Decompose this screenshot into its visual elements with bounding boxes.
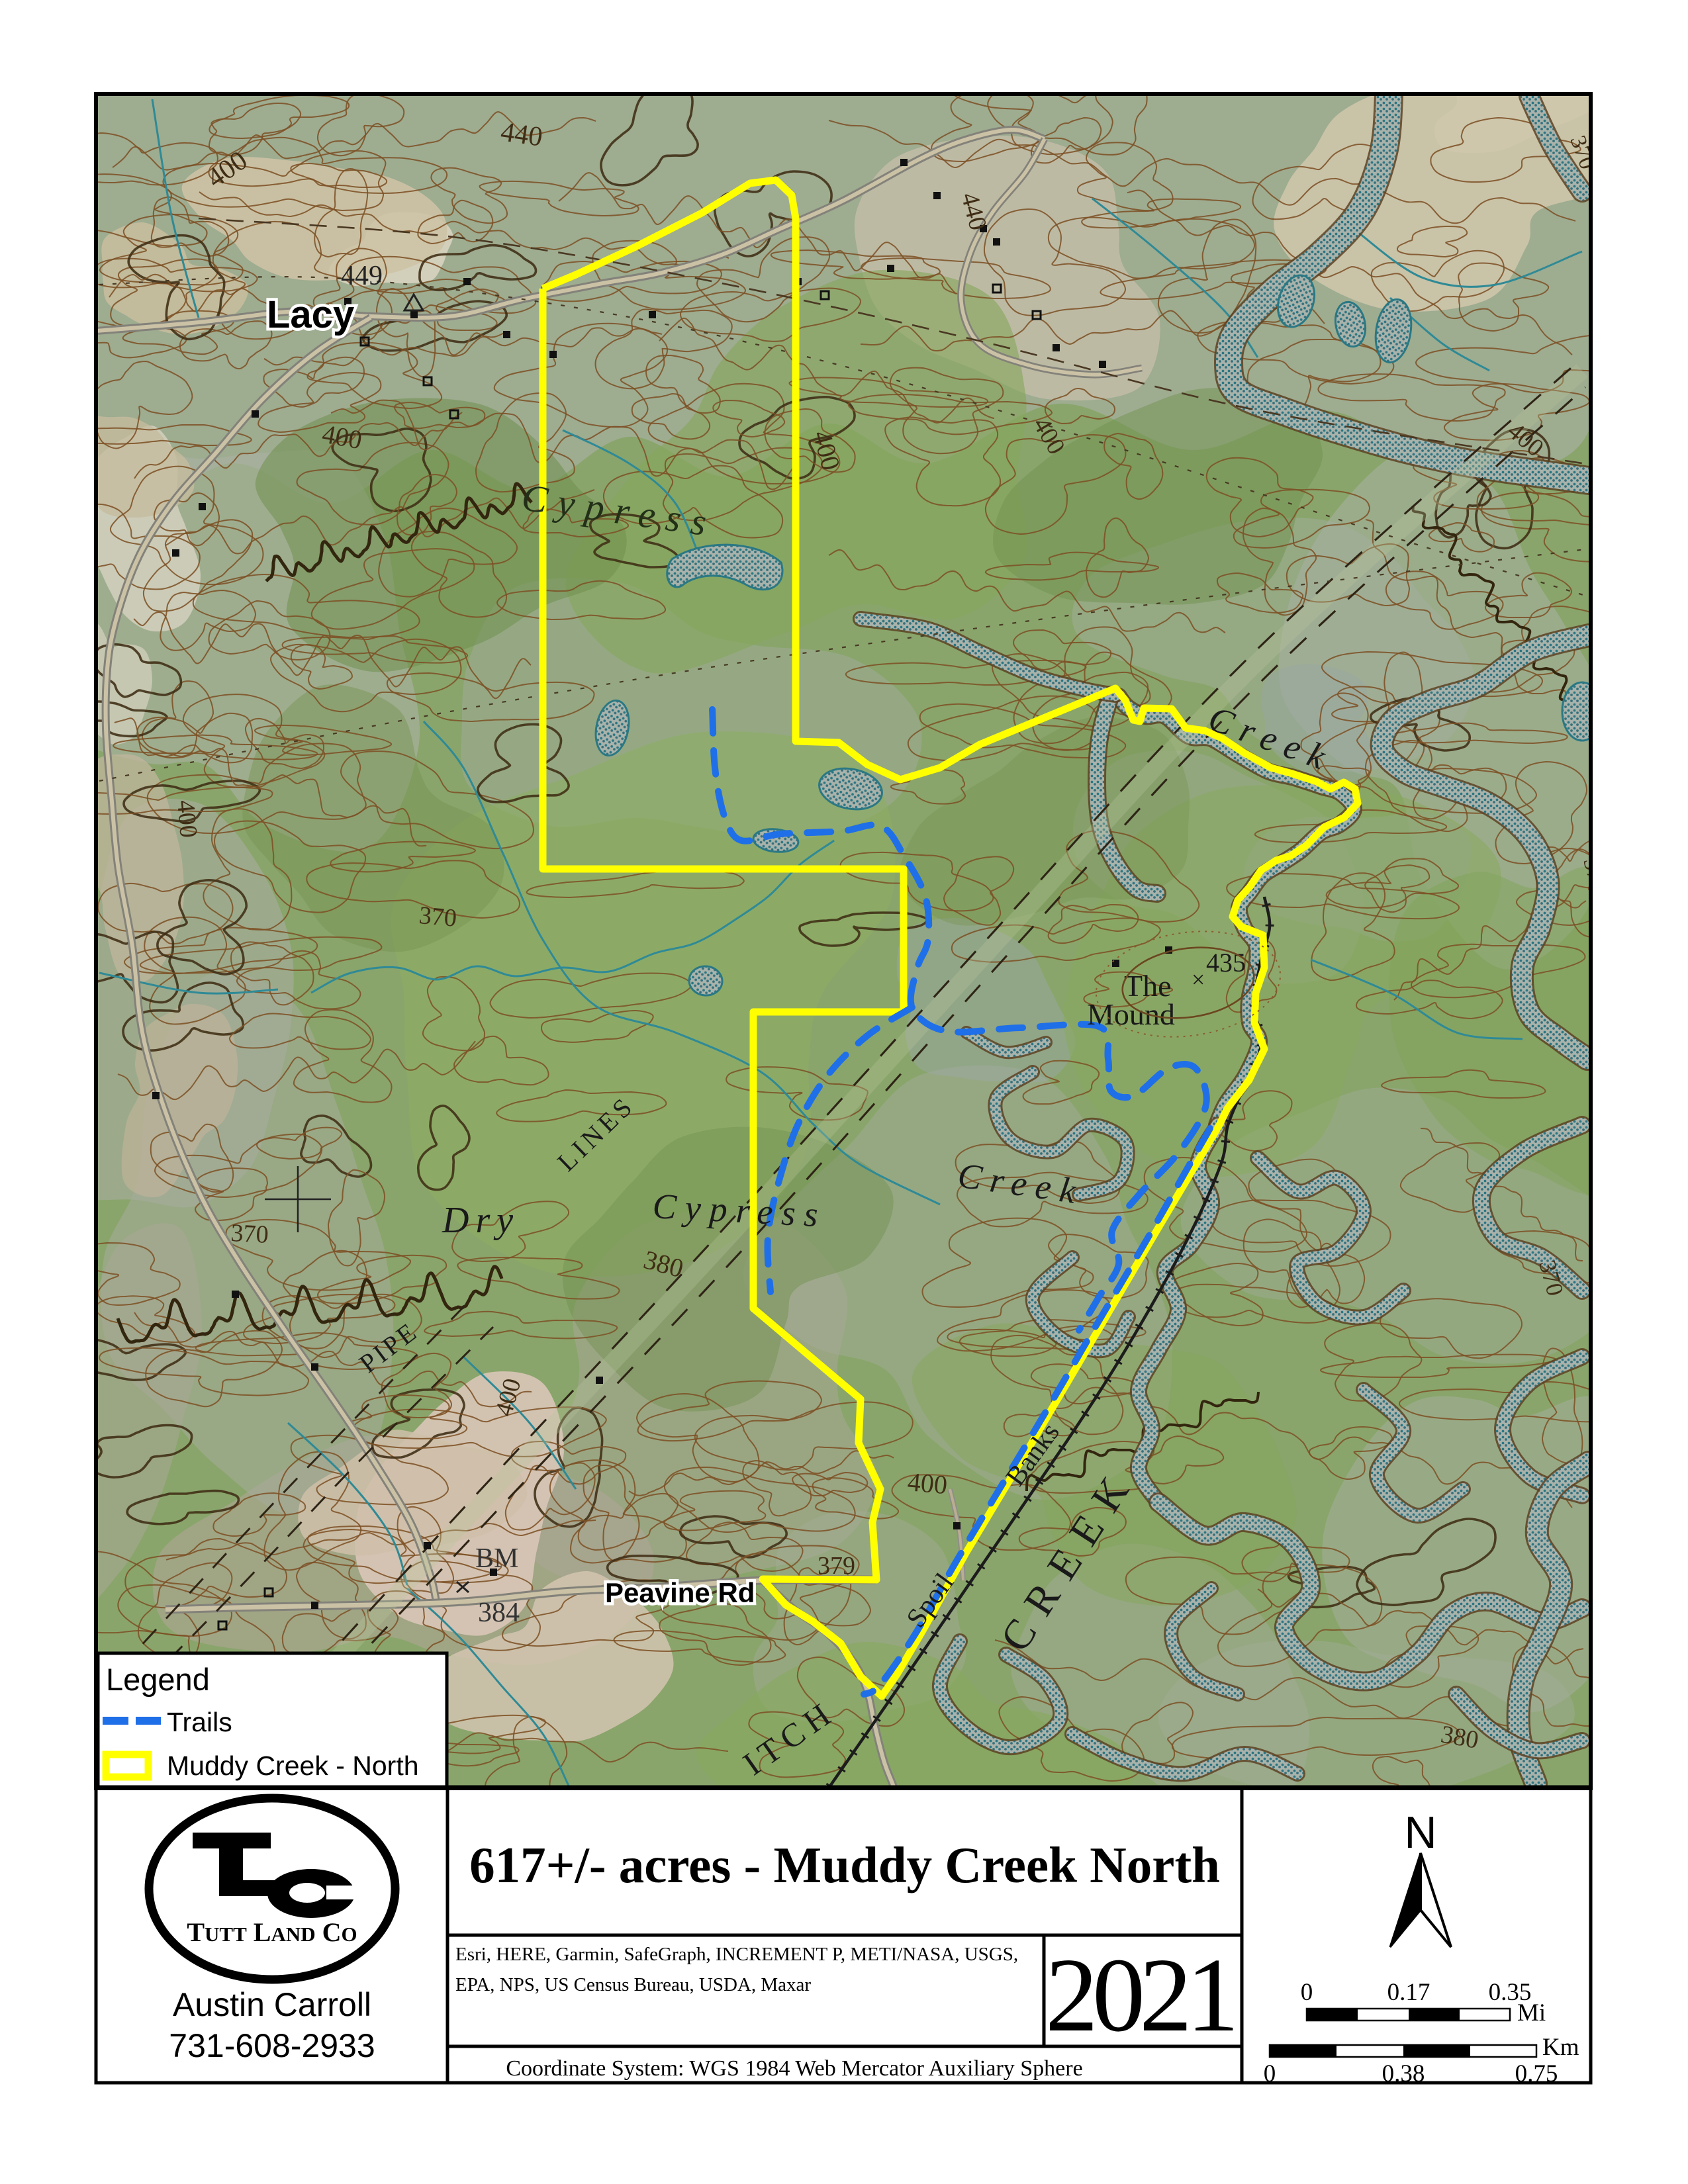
svg-text:Legend: Legend: [106, 1662, 210, 1697]
svg-text:Mi: Mi: [1517, 1999, 1546, 2026]
svg-text:0: 0: [1301, 1979, 1313, 2006]
svg-text:Esri, HERE, Garmin, SafeGraph,: Esri, HERE, Garmin, SafeGraph, INCREMENT…: [455, 1944, 1018, 1965]
svg-text:0.38: 0.38: [1382, 2060, 1425, 2087]
svg-text:617+/- acres - Muddy Creek Nor: 617+/- acres - Muddy Creek North: [469, 1837, 1220, 1893]
svg-text:370: 370: [418, 901, 457, 933]
svg-text:731-608-2933: 731-608-2933: [169, 2027, 375, 2064]
svg-text:Km: Km: [1542, 2034, 1579, 2061]
svg-text:0.75: 0.75: [1515, 2060, 1558, 2087]
svg-text:379: 379: [818, 1552, 855, 1580]
svg-text:440: 440: [499, 116, 545, 152]
svg-text:435: 435: [1206, 948, 1246, 978]
svg-text:Lacy: Lacy: [267, 293, 354, 336]
svg-text:0: 0: [1264, 2060, 1276, 2087]
svg-text:Mound: Mound: [1087, 997, 1175, 1031]
svg-text:0.17: 0.17: [1387, 1979, 1430, 2006]
svg-text:Trails: Trails: [167, 1707, 232, 1737]
svg-text:Austin Carroll: Austin Carroll: [173, 1986, 371, 2023]
svg-text:400: 400: [171, 799, 203, 839]
svg-text:Muddy Creek - North: Muddy Creek - North: [167, 1751, 419, 1781]
svg-text:Dry: Dry: [442, 1200, 520, 1241]
svg-text:370: 370: [230, 1219, 269, 1249]
svg-text:×: ×: [1192, 966, 1205, 993]
svg-text:EPA, NPS, US Census Bureau, US: EPA, NPS, US Census Bureau, USDA, Maxar: [455, 1974, 811, 1995]
svg-text:384: 384: [478, 1598, 520, 1628]
svg-text:449: 449: [341, 261, 383, 291]
svg-text:N: N: [1404, 1807, 1436, 1858]
svg-text:2021: 2021: [1045, 1936, 1233, 2054]
svg-text:BM: BM: [475, 1543, 518, 1574]
svg-text:400: 400: [906, 1467, 949, 1500]
svg-text:Peavine Rd: Peavine Rd: [605, 1577, 755, 1608]
svg-text:Coordinate System: WGS 1984 We: Coordinate System: WGS 1984 Web Mercator…: [506, 2056, 1082, 2081]
